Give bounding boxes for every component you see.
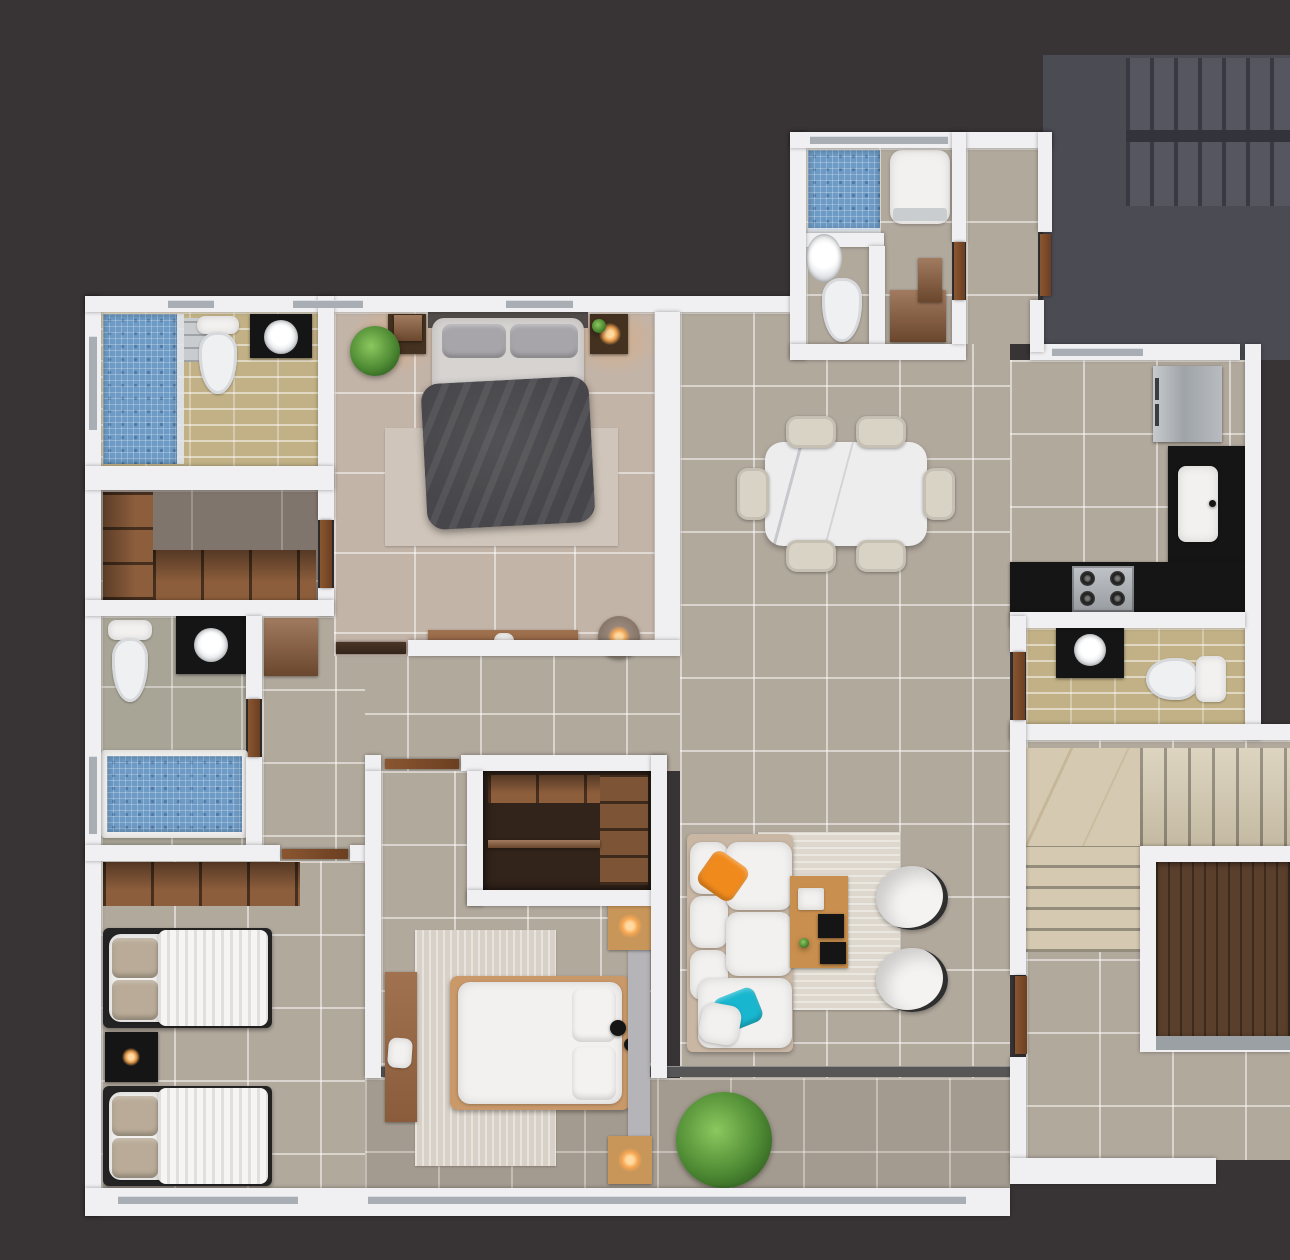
- master-sliding-door: [336, 642, 406, 654]
- ensuite-sink: [264, 320, 298, 354]
- bedroom2-lamp-bottom-glow: [618, 1148, 642, 1172]
- sofa-throw-blanket: [697, 1001, 743, 1047]
- closet-shelving-left: [103, 492, 153, 600]
- dining-table: [765, 442, 927, 546]
- dining-chair-right: [923, 468, 955, 520]
- bedroom2-pillow-a: [572, 988, 616, 1042]
- bedroom2-lamp-top-glow: [618, 914, 642, 938]
- kitchen-faucet: [1209, 500, 1216, 507]
- window-kitchen-top: [1052, 348, 1143, 356]
- twin-bed-2-pillow-b: [112, 1138, 158, 1178]
- wall-wc-twin-b: [350, 845, 365, 861]
- laundry-wall-sink: [806, 234, 842, 282]
- wall-master-bottom: [408, 640, 680, 656]
- wall-laundry-right-a: [952, 132, 966, 242]
- bathroom3-sink: [1074, 634, 1106, 666]
- hall-corner-shelf: [918, 258, 942, 302]
- dining-chair-left: [737, 468, 769, 520]
- floor-plan-canvas: [0, 0, 1290, 1260]
- bathroom3-toilet: [1146, 658, 1200, 700]
- twin-bed-1-pillow-a: [112, 938, 158, 978]
- washing-machine-door: [893, 208, 947, 221]
- wall-core-left-b: [1030, 300, 1044, 352]
- bedroom2-laptop: [387, 1037, 413, 1069]
- bathroom3-door: [1013, 652, 1025, 720]
- fridge: [1153, 366, 1222, 442]
- coffee-table-tray-1: [818, 914, 844, 938]
- wall-wardrobe-bottom: [467, 890, 651, 906]
- window-bottom-balcony: [368, 1196, 966, 1204]
- guest-tub: [107, 756, 242, 832]
- closet-shelving-bottom: [153, 550, 316, 600]
- armchair-top: [876, 866, 948, 930]
- laundry-door: [954, 242, 965, 300]
- wall-stairhall-left-b: [1010, 720, 1026, 975]
- sofa-back-cushion-2: [690, 896, 728, 948]
- guest-toilet-tank: [108, 620, 152, 640]
- coffee-table-plant-icon: [799, 938, 809, 948]
- guest-sink: [194, 628, 228, 662]
- hob-burner-2: [1110, 571, 1125, 586]
- twin-bed-1-duvet: [158, 930, 268, 1026]
- core-stair-flight-upper: [1126, 58, 1290, 132]
- ensuite-shower-glass: [177, 314, 184, 464]
- twin-bed-1-pillow-b: [112, 980, 158, 1020]
- core-stair-landing-rail: [1126, 130, 1290, 142]
- bedroom2-door: [385, 759, 459, 769]
- hob-burner-3: [1080, 591, 1095, 606]
- closet-door: [320, 520, 332, 588]
- wall-kitchen-right: [1245, 344, 1261, 740]
- elevator-sill: [1156, 1036, 1290, 1050]
- wall-wardrobe-left: [467, 771, 483, 906]
- wall-wc-right-a: [246, 616, 262, 699]
- wall-bedroom2-right: [651, 755, 667, 1078]
- apartment-entry-door: [1040, 234, 1051, 296]
- wall-bathroom3-top: [1010, 612, 1245, 628]
- window-top-1: [168, 300, 214, 308]
- twin-nightstand-lamp-glow: [122, 1048, 140, 1066]
- window-left-ensuite: [89, 336, 97, 430]
- wall-master-right: [655, 312, 680, 640]
- stair-flight-right: [1140, 748, 1290, 846]
- wardrobe-mid-shelf: [488, 840, 600, 848]
- window-top-2: [293, 300, 363, 308]
- twin-bedroom-door: [282, 849, 348, 859]
- wall-bedroom2-left: [365, 771, 381, 1078]
- bathroom3-toilet-tank: [1196, 656, 1226, 702]
- twin-shelf-row: [103, 862, 300, 906]
- wall-stairhall-left-a: [1010, 616, 1026, 652]
- bedroom2-headboard-panel: [628, 950, 650, 1136]
- master-plant-small-icon: [592, 319, 606, 333]
- wall-bedroom2-top-stub: [365, 755, 381, 771]
- coffee-table-tray-2: [820, 942, 846, 964]
- hob-burner-4: [1110, 591, 1125, 606]
- window-left-tub: [89, 756, 97, 834]
- guest-bathroom-door: [248, 699, 260, 757]
- twin-bed-2-duvet: [158, 1088, 268, 1184]
- elevator-cab: [1156, 862, 1290, 1036]
- dining-chair-top-2: [856, 416, 906, 448]
- laundry-shower: [808, 150, 880, 230]
- wall-laundry-left: [790, 132, 806, 360]
- coffee-table-book: [798, 888, 824, 910]
- master-pillow-left: [442, 324, 506, 358]
- stair-landing: [1026, 748, 1140, 846]
- master-basket: [394, 315, 422, 341]
- laundry-wall-stub-b: [869, 246, 885, 344]
- bedroom2-decor-ball-1: [610, 1020, 626, 1036]
- dining-chair-bottom-2: [856, 540, 906, 572]
- master-pillow-right: [510, 324, 578, 358]
- window-top-3: [506, 300, 573, 308]
- wall-closet-wc: [85, 600, 334, 616]
- wall-wc-right-b: [246, 757, 262, 845]
- dining-chair-bottom-1: [786, 540, 836, 572]
- master-duvet: [420, 376, 595, 531]
- fridge-handle-1: [1155, 378, 1159, 400]
- floor-entry-hall: [966, 148, 1038, 344]
- dining-chair-top-1: [786, 416, 836, 448]
- wall-laundry-right-b: [952, 300, 966, 344]
- twin-bed-2-pillow-a: [112, 1096, 158, 1136]
- wall-laundry-bottom: [790, 344, 966, 360]
- master-plant-icon: [350, 326, 400, 376]
- wall-stairhall-bottom: [1010, 1158, 1216, 1184]
- ensuite-shower: [103, 314, 177, 464]
- wall-wc-twin-a: [85, 845, 280, 861]
- window-laundry-top: [810, 136, 948, 144]
- hob-burner-1: [1080, 571, 1095, 586]
- wall-core-left-a: [1038, 132, 1052, 232]
- armchair-bottom: [876, 948, 948, 1012]
- wardrobe-cubbies: [600, 775, 648, 885]
- wall-ensuite-closet: [85, 466, 334, 490]
- sofa-seat-cushion-2: [726, 912, 792, 976]
- wall-bathroom3-bottom: [1010, 724, 1290, 740]
- core-stair-flight-lower: [1126, 142, 1290, 206]
- floor-hallway: [334, 640, 680, 771]
- wall-stairhall-left-c: [1010, 1057, 1026, 1160]
- window-bottom-twin: [118, 1196, 298, 1204]
- stair-flight-down: [1026, 846, 1140, 952]
- corridor-cabinet: [264, 618, 318, 676]
- wardrobe-upper-shelf: [488, 775, 600, 803]
- stairhall-door: [1015, 976, 1027, 1054]
- fridge-handle-2: [1155, 404, 1159, 426]
- wall-bedroom2-top: [461, 755, 667, 771]
- living-plant: [676, 1092, 772, 1188]
- bedroom2-pillow-b: [572, 1046, 616, 1100]
